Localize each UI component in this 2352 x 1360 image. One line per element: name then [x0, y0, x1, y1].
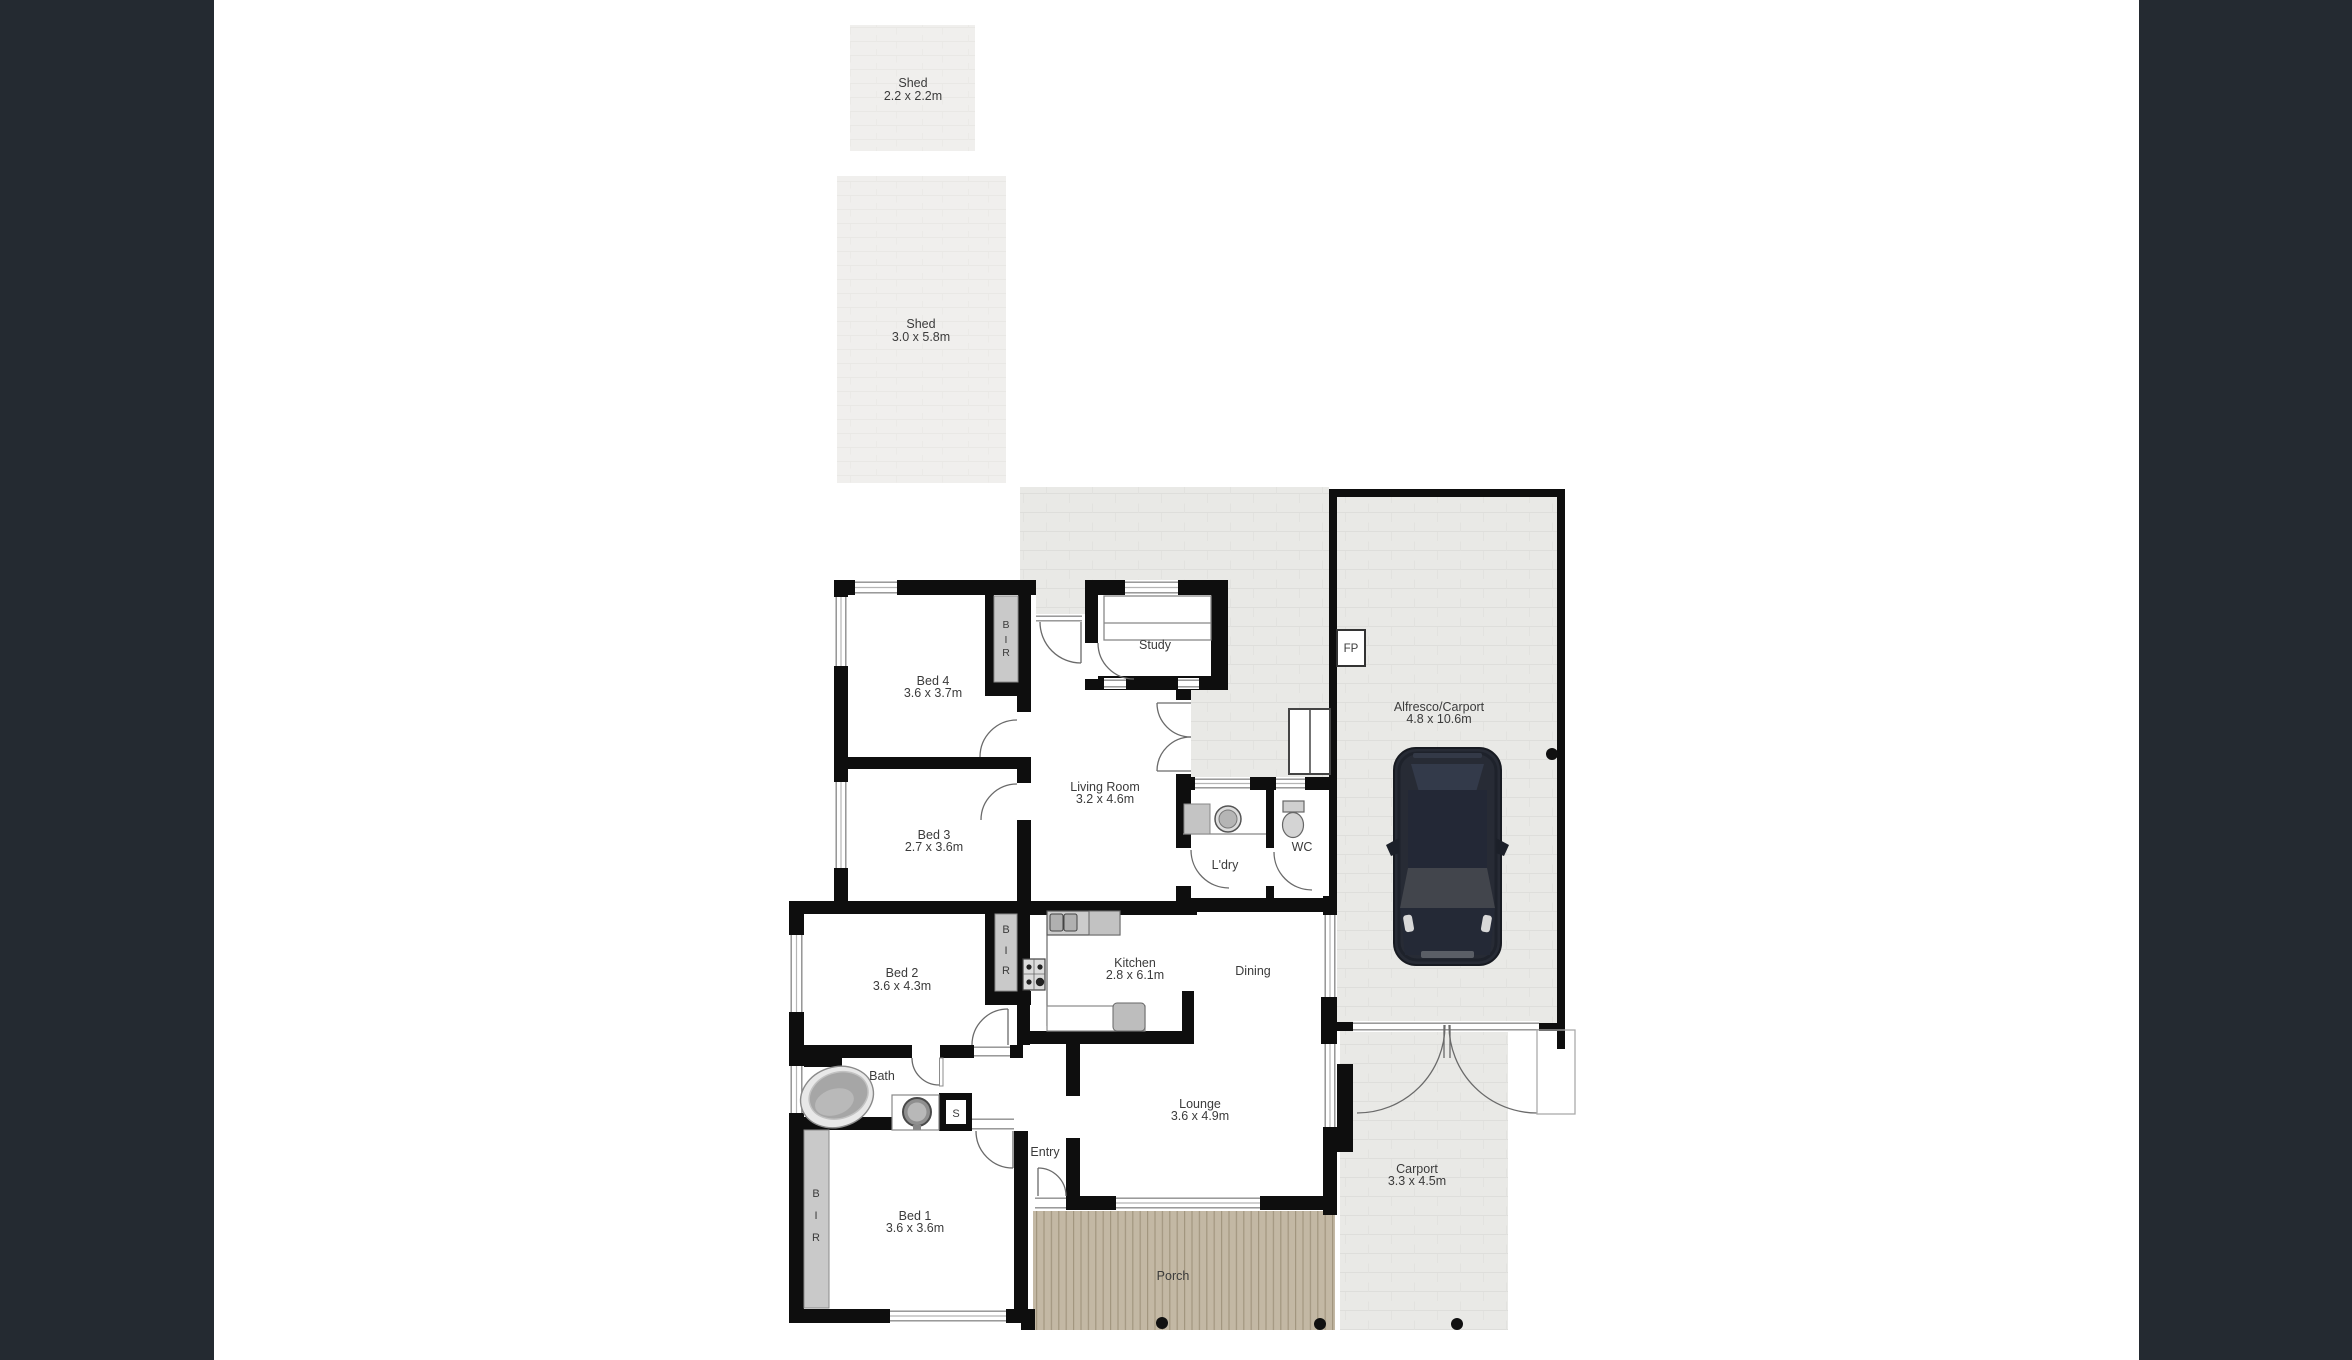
svg-text:3.6 x 4.9m: 3.6 x 4.9m: [1171, 1109, 1229, 1123]
svg-text:3.6 x 3.7m: 3.6 x 3.7m: [904, 686, 962, 700]
svg-text:Bed 2: Bed 2: [886, 966, 919, 980]
svg-text:R: R: [812, 1232, 820, 1244]
svg-text:WC: WC: [1292, 840, 1313, 854]
svg-text:I: I: [1004, 945, 1007, 957]
svg-text:3.2 x 4.6m: 3.2 x 4.6m: [1076, 792, 1134, 806]
svg-text:Entry: Entry: [1030, 1145, 1060, 1159]
svg-text:3.3 x 4.5m: 3.3 x 4.5m: [1388, 1174, 1446, 1188]
svg-text:FP: FP: [1344, 643, 1359, 655]
svg-text:3.0 x 5.8m: 3.0 x 5.8m: [892, 330, 950, 344]
svg-text:2.8 x 6.1m: 2.8 x 6.1m: [1106, 968, 1164, 982]
svg-text:4.8 x 10.6m: 4.8 x 10.6m: [1406, 712, 1471, 726]
svg-text:Study: Study: [1139, 638, 1172, 652]
svg-text:Dining: Dining: [1235, 964, 1270, 978]
svg-text:I: I: [1005, 634, 1008, 646]
svg-text:I: I: [814, 1210, 817, 1222]
svg-text:R: R: [1002, 647, 1010, 659]
svg-text:2.2 x 2.2m: 2.2 x 2.2m: [884, 89, 942, 103]
svg-text:S: S: [952, 1108, 959, 1120]
svg-text:B: B: [1002, 924, 1009, 936]
svg-text:Shed: Shed: [898, 76, 927, 90]
svg-text:2.7 x 3.6m: 2.7 x 3.6m: [905, 840, 963, 854]
svg-text:B: B: [1002, 619, 1009, 631]
svg-text:B: B: [812, 1188, 819, 1200]
svg-text:Shed: Shed: [906, 317, 935, 331]
svg-text:R: R: [1002, 965, 1010, 977]
svg-text:3.6 x 3.6m: 3.6 x 3.6m: [886, 1221, 944, 1235]
svg-text:L'dry: L'dry: [1212, 858, 1239, 872]
svg-text:Porch: Porch: [1157, 1269, 1190, 1283]
svg-text:Bath: Bath: [869, 1069, 895, 1083]
svg-text:3.6 x 4.3m: 3.6 x 4.3m: [873, 979, 931, 993]
